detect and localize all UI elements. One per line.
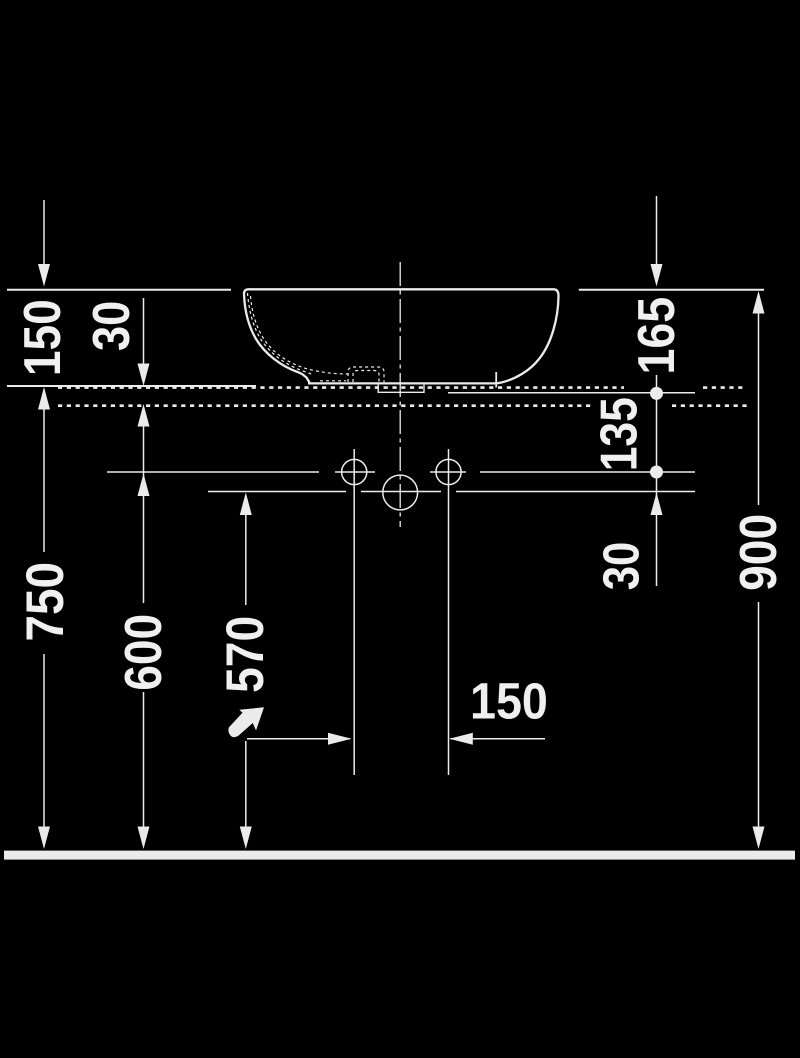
svg-text:165: 165	[628, 297, 686, 375]
svg-text:600: 600	[115, 614, 173, 691]
svg-text:750: 750	[16, 562, 75, 642]
svg-text:150: 150	[14, 299, 72, 376]
svg-text:150: 150	[470, 673, 548, 730]
svg-text:135: 135	[590, 397, 648, 471]
svg-text:30: 30	[593, 542, 650, 591]
svg-text:570: 570	[216, 616, 275, 693]
svg-text:900: 900	[730, 514, 788, 591]
svg-text:30: 30	[83, 301, 141, 351]
